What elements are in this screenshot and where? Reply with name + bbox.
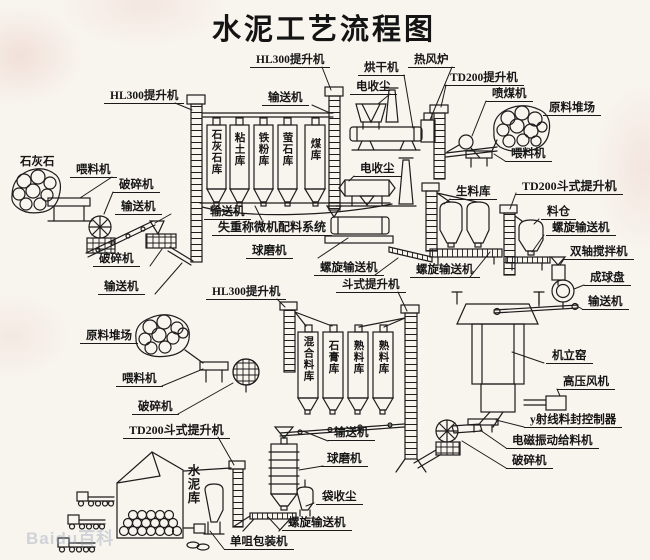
diagram-artwork <box>0 0 650 560</box>
conveyor-left-2-machine <box>168 247 193 265</box>
label-hot-stove: 热风炉 <box>408 54 455 68</box>
label-feeder-top-right: 喂料机 <box>505 148 552 162</box>
crusher-bottom-machine <box>233 359 259 392</box>
label-raw-meal-silo: 生料库 <box>450 186 497 200</box>
watermark: Baidu百科 <box>26 524 114 549</box>
label-screw-mid: 螺旋输送机 <box>314 262 384 276</box>
label-cement-silo: 水泥库 <box>186 464 199 505</box>
feeder-top-right-machine <box>446 140 497 167</box>
label-conveyor-right: 输送机 <box>582 296 629 310</box>
label-batching-system: 失重称微机配料系统 <box>212 221 332 236</box>
label-screw-bottom: 螺旋输送机 <box>282 517 352 531</box>
label-td200-right: TD200斗式提升机 <box>516 180 623 195</box>
label-td200-bottom-left: TD200斗式提升机 <box>123 424 230 439</box>
label-limestone: 石灰石 <box>20 156 55 168</box>
silo-label-clinker-1: 熟料库 <box>352 340 363 375</box>
label-hl300-elevator-mid: HL300提升机 <box>250 54 330 68</box>
label-screw-rawsilo: 螺旋输送机 <box>410 264 480 278</box>
label-conveyor-bottom: 输送机 <box>328 427 375 441</box>
label-dryer: 烘干机 <box>358 62 405 76</box>
label-bucket-elevator-mid: 斗式提升机 <box>336 279 406 293</box>
crusher-left-2-machine <box>146 221 176 248</box>
dryer-unit <box>350 88 435 150</box>
label-hopper: 料仓 <box>541 206 576 220</box>
label-crusher-bottom-left: 破碎机 <box>132 401 179 415</box>
page-title: 水泥工艺流程图 <box>212 6 436 48</box>
label-yard-top-right: 原料堆场 <box>543 102 601 116</box>
label-bag-dust: 袋收尘 <box>316 491 363 505</box>
label-conveyor-silos: 输送机 <box>204 206 251 220</box>
label-crusher-left-1: 破碎机 <box>113 179 160 193</box>
label-coal-injector: 喷煤机 <box>486 88 533 102</box>
label-hl300-elevator-left: HL300提升机 <box>104 90 184 104</box>
label-conveyor-top: 输送机 <box>262 92 309 106</box>
cement-process-flow-diagram: 水泥工艺流程图 HL300提升机 HL300提升机 输送机 烘干机 热风炉 电收… <box>0 0 650 560</box>
label-vib-feeder: 电磁振动给料机 <box>506 435 599 449</box>
label-td200-elevator-top: TD200提升机 <box>444 72 524 86</box>
label-edust-mid: 电收尘 <box>354 163 401 177</box>
bag-dust-collector <box>297 480 313 516</box>
label-yard-left: 原料堆场 <box>80 330 138 344</box>
label-ball-mill-raw: 球磨机 <box>246 245 293 259</box>
raw-yard-top-pile <box>494 106 550 152</box>
label-conveyor-left-2: 输送机 <box>98 281 145 295</box>
silo-label-coal: 煤库 <box>309 138 320 161</box>
silo-label-clay: 粘土库 <box>233 132 244 167</box>
label-ball-mill-cement: 球磨机 <box>321 453 368 467</box>
label-ball-disc: 成球盘 <box>584 272 631 286</box>
feeder-left-machine <box>48 198 92 221</box>
hl300-elevator-left <box>187 95 205 262</box>
cement-mill-tower <box>269 427 299 510</box>
silo-label-gypsum: 石膏库 <box>327 340 338 375</box>
silo-label-mix: 混合料库 <box>302 336 313 382</box>
label-crusher-left-2: 破碎机 <box>93 253 140 267</box>
label-feeder-left: 喂料机 <box>70 164 117 178</box>
label-crusher-kiln: 破碎机 <box>506 455 553 469</box>
label-mixer: 双轴搅拌机 <box>564 246 634 260</box>
label-conveyor-left-1: 输送机 <box>115 201 162 215</box>
label-screw-right: 螺旋输送机 <box>546 222 616 236</box>
silo-label-iron: 铁粉库 <box>257 132 268 167</box>
feeder-bottom-machine <box>185 350 228 382</box>
silo-label-limestone: 石灰石库 <box>210 129 221 175</box>
label-kiln: 机立窑 <box>546 350 593 364</box>
label-hl300-elevator-bottom: HL300提升机 <box>206 286 286 300</box>
yard-left-pile <box>136 315 190 357</box>
label-gamma-controller: y射线料封控制器 <box>524 414 622 428</box>
label-hp-fan: 高压风机 <box>557 376 615 390</box>
cement-silo-house <box>117 452 183 538</box>
silo-label-clinker-2: 熟料库 <box>377 340 388 375</box>
label-feeder-bottom: 喂料机 <box>116 373 163 387</box>
label-packer: 单咀包装机 <box>224 536 294 550</box>
silo-label-fluorite: 萤石库 <box>281 132 292 167</box>
raw-ball-mill <box>325 206 432 262</box>
label-edust-top: 电收尘 <box>350 81 397 95</box>
hl300-elevator-mid <box>325 87 343 210</box>
